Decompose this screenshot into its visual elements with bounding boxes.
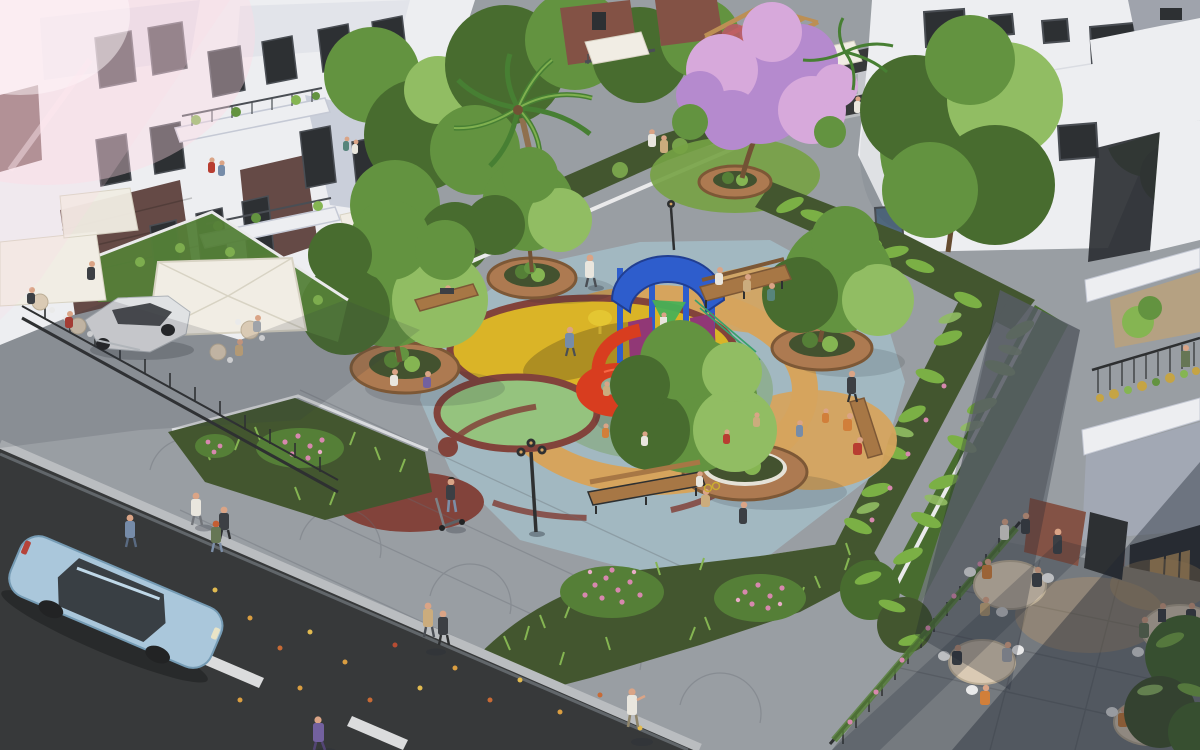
lighting-effects [0,0,1200,750]
scene-aerial-render [0,0,1200,750]
render-canvas [0,0,1200,750]
